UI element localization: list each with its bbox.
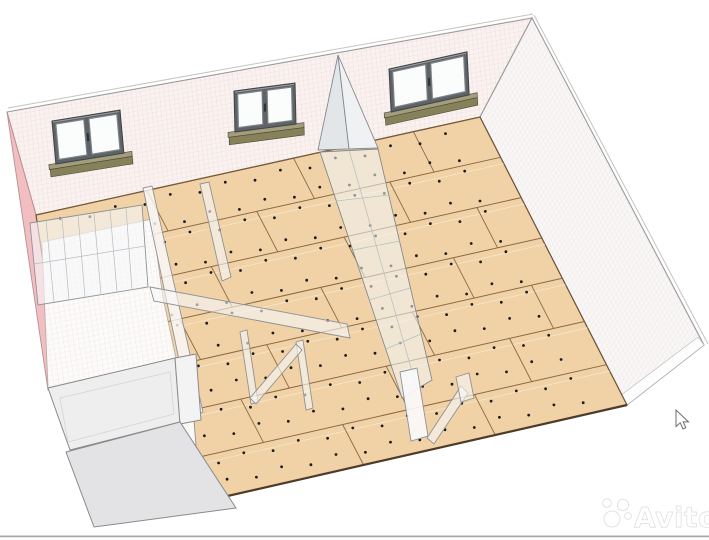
model-viewport[interactable]: Avito — [0, 0, 709, 540]
window-middle — [227, 82, 304, 145]
floor-plan-3d-view: Avito — [0, 0, 709, 540]
avito-logo-text: Avito — [634, 501, 709, 534]
avito-logo-dots — [603, 499, 632, 527]
window-pane-left — [56, 119, 87, 159]
mouse-cursor-icon — [676, 410, 689, 429]
window-pane-left — [393, 64, 428, 107]
window-pane-right — [267, 87, 292, 124]
window-handle — [264, 103, 266, 111]
window-pane-right — [431, 56, 466, 99]
window-handle — [428, 78, 430, 86]
window-pane-left — [238, 91, 263, 128]
window-pane-right — [89, 114, 120, 154]
avito-watermark: Avito — [603, 499, 709, 534]
bottom-border-line — [0, 536, 709, 538]
front-wall-side-face — [175, 354, 201, 424]
